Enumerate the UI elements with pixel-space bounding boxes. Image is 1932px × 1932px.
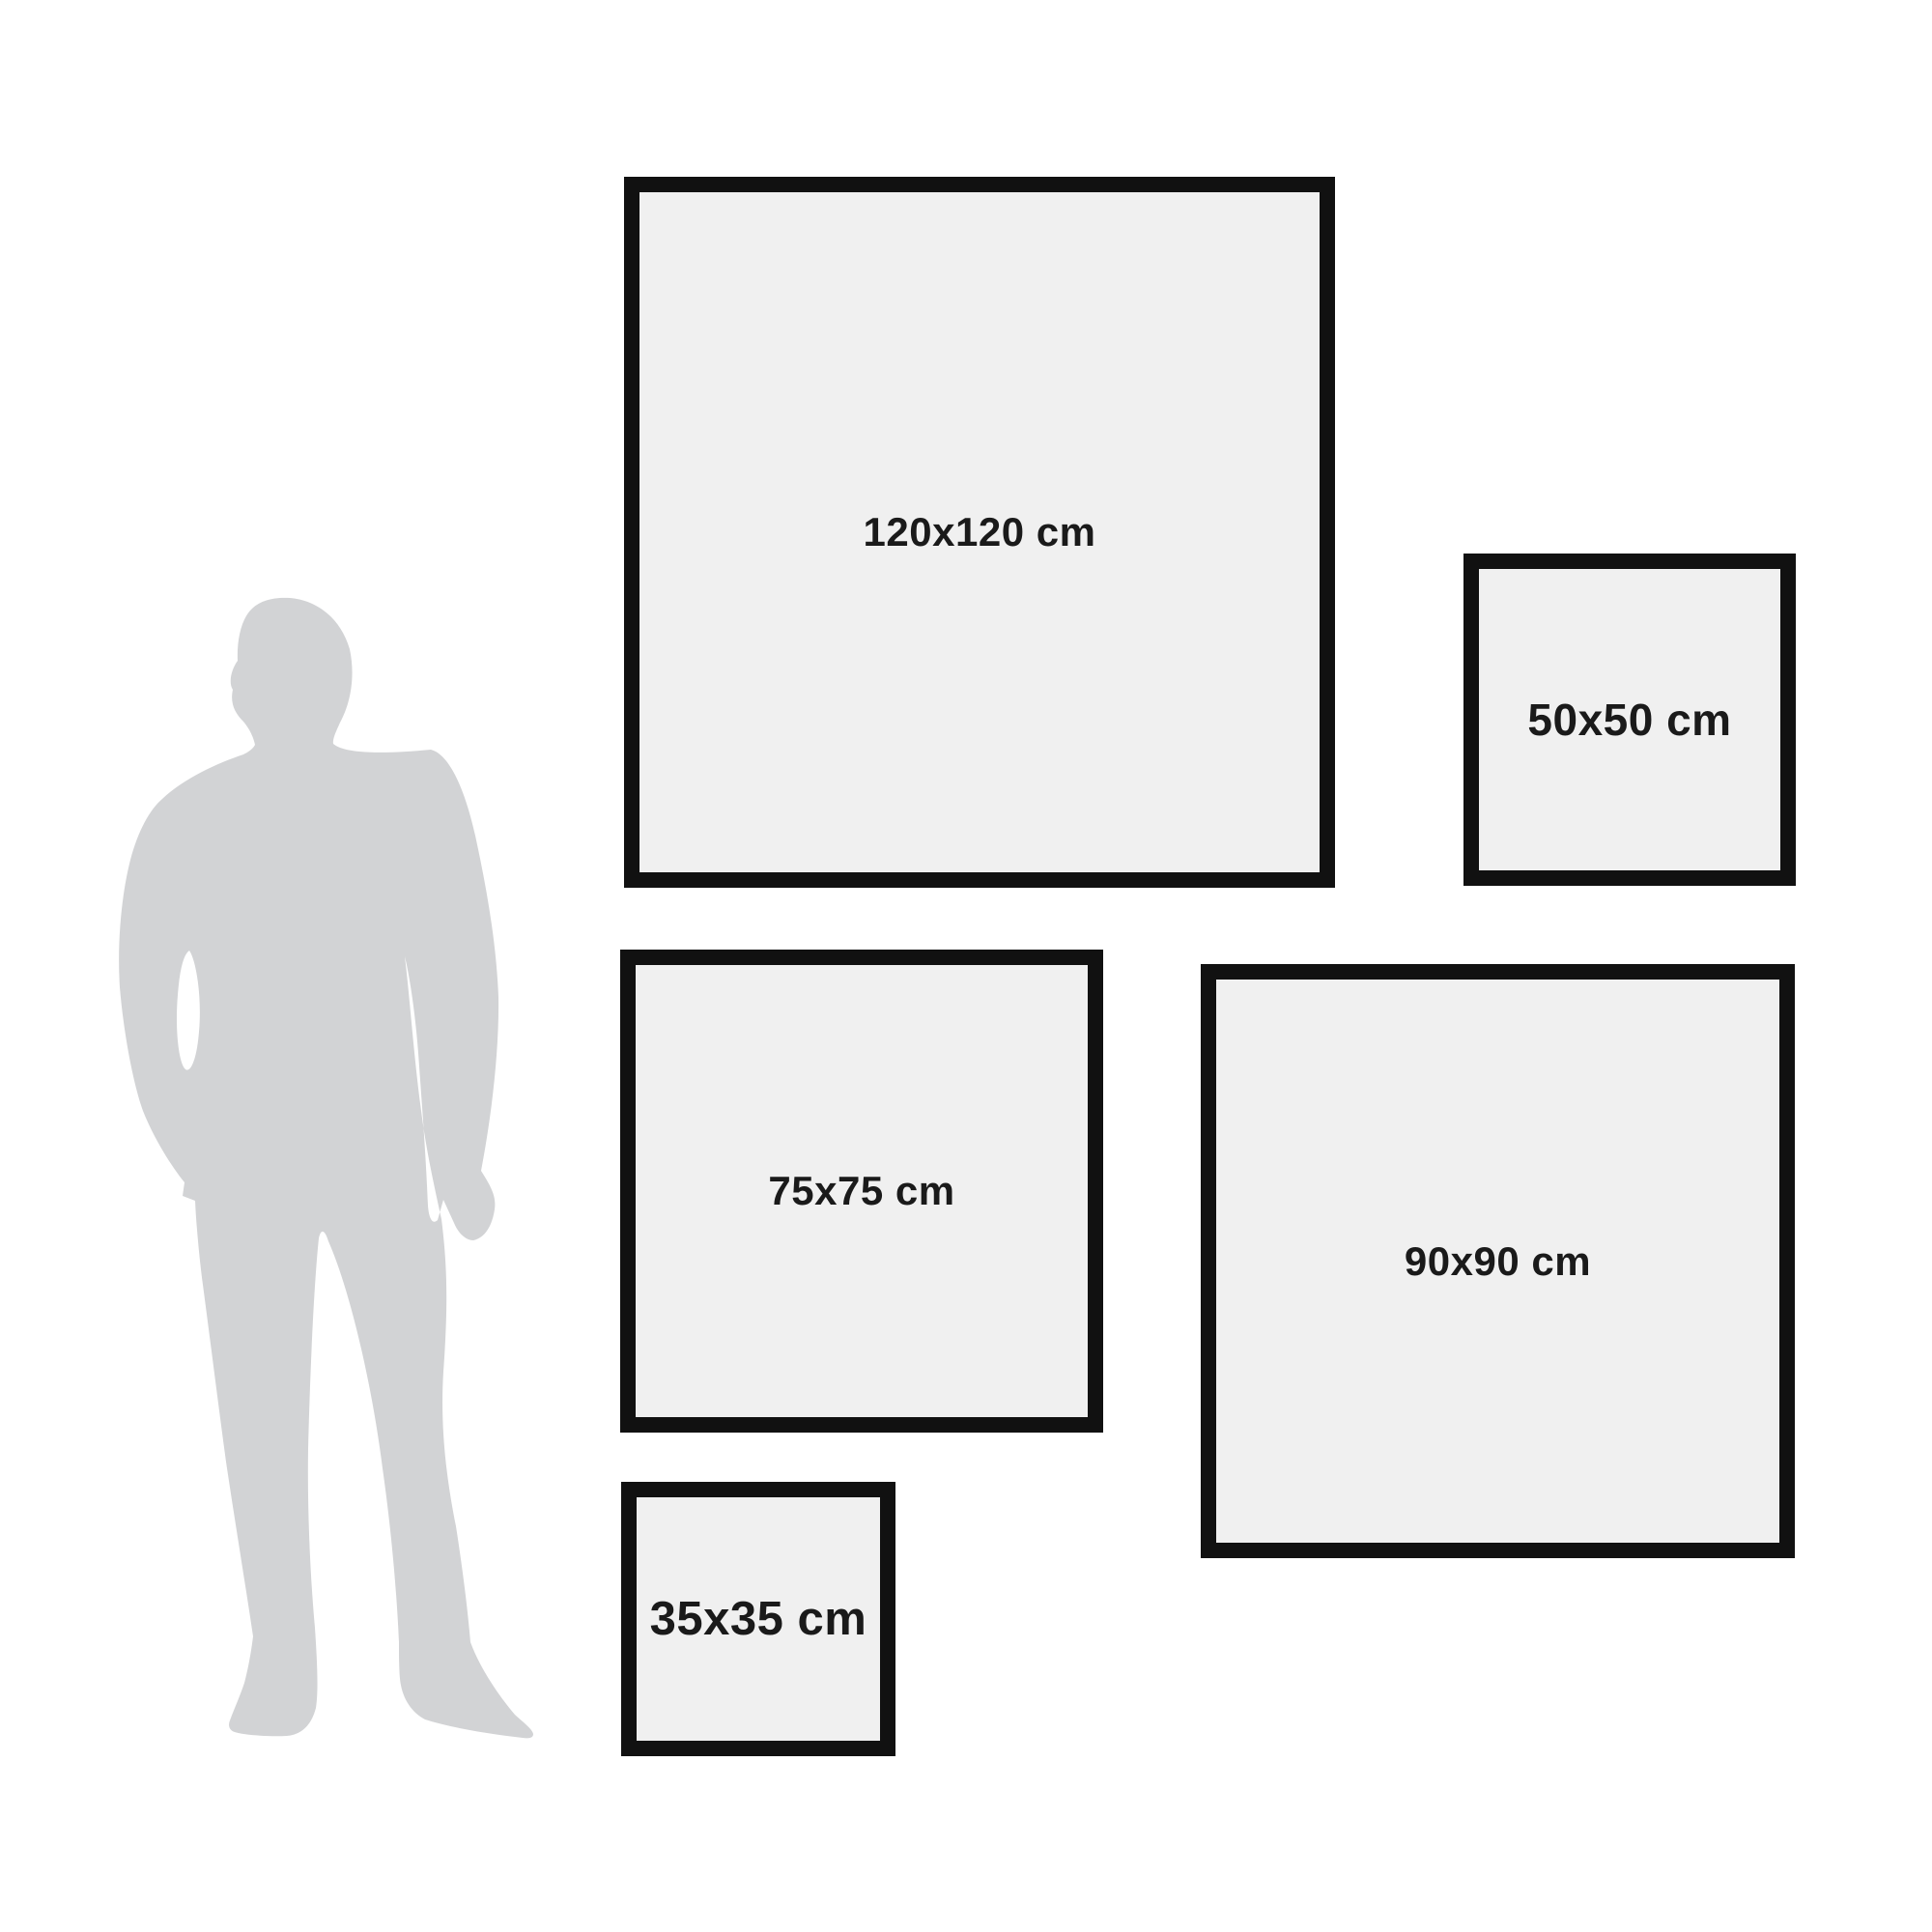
frame-90x90: 90x90 cm	[1201, 964, 1795, 1558]
size-guide-canvas: 120x120 cm 50x50 cm 75x75 cm 90x90 cm 35…	[0, 0, 1932, 1932]
frame-35x35-label: 35x35 cm	[650, 1592, 867, 1646]
frame-35x35: 35x35 cm	[621, 1482, 895, 1756]
frame-75x75-label: 75x75 cm	[768, 1168, 954, 1214]
frame-120x120: 120x120 cm	[624, 177, 1335, 888]
frame-75x75: 75x75 cm	[620, 950, 1103, 1433]
frame-120x120-label: 120x120 cm	[864, 509, 1096, 555]
frame-50x50: 50x50 cm	[1463, 554, 1796, 886]
frame-50x50-label: 50x50 cm	[1527, 694, 1731, 746]
frame-90x90-label: 90x90 cm	[1405, 1238, 1591, 1285]
silhouette-path	[119, 598, 533, 1739]
